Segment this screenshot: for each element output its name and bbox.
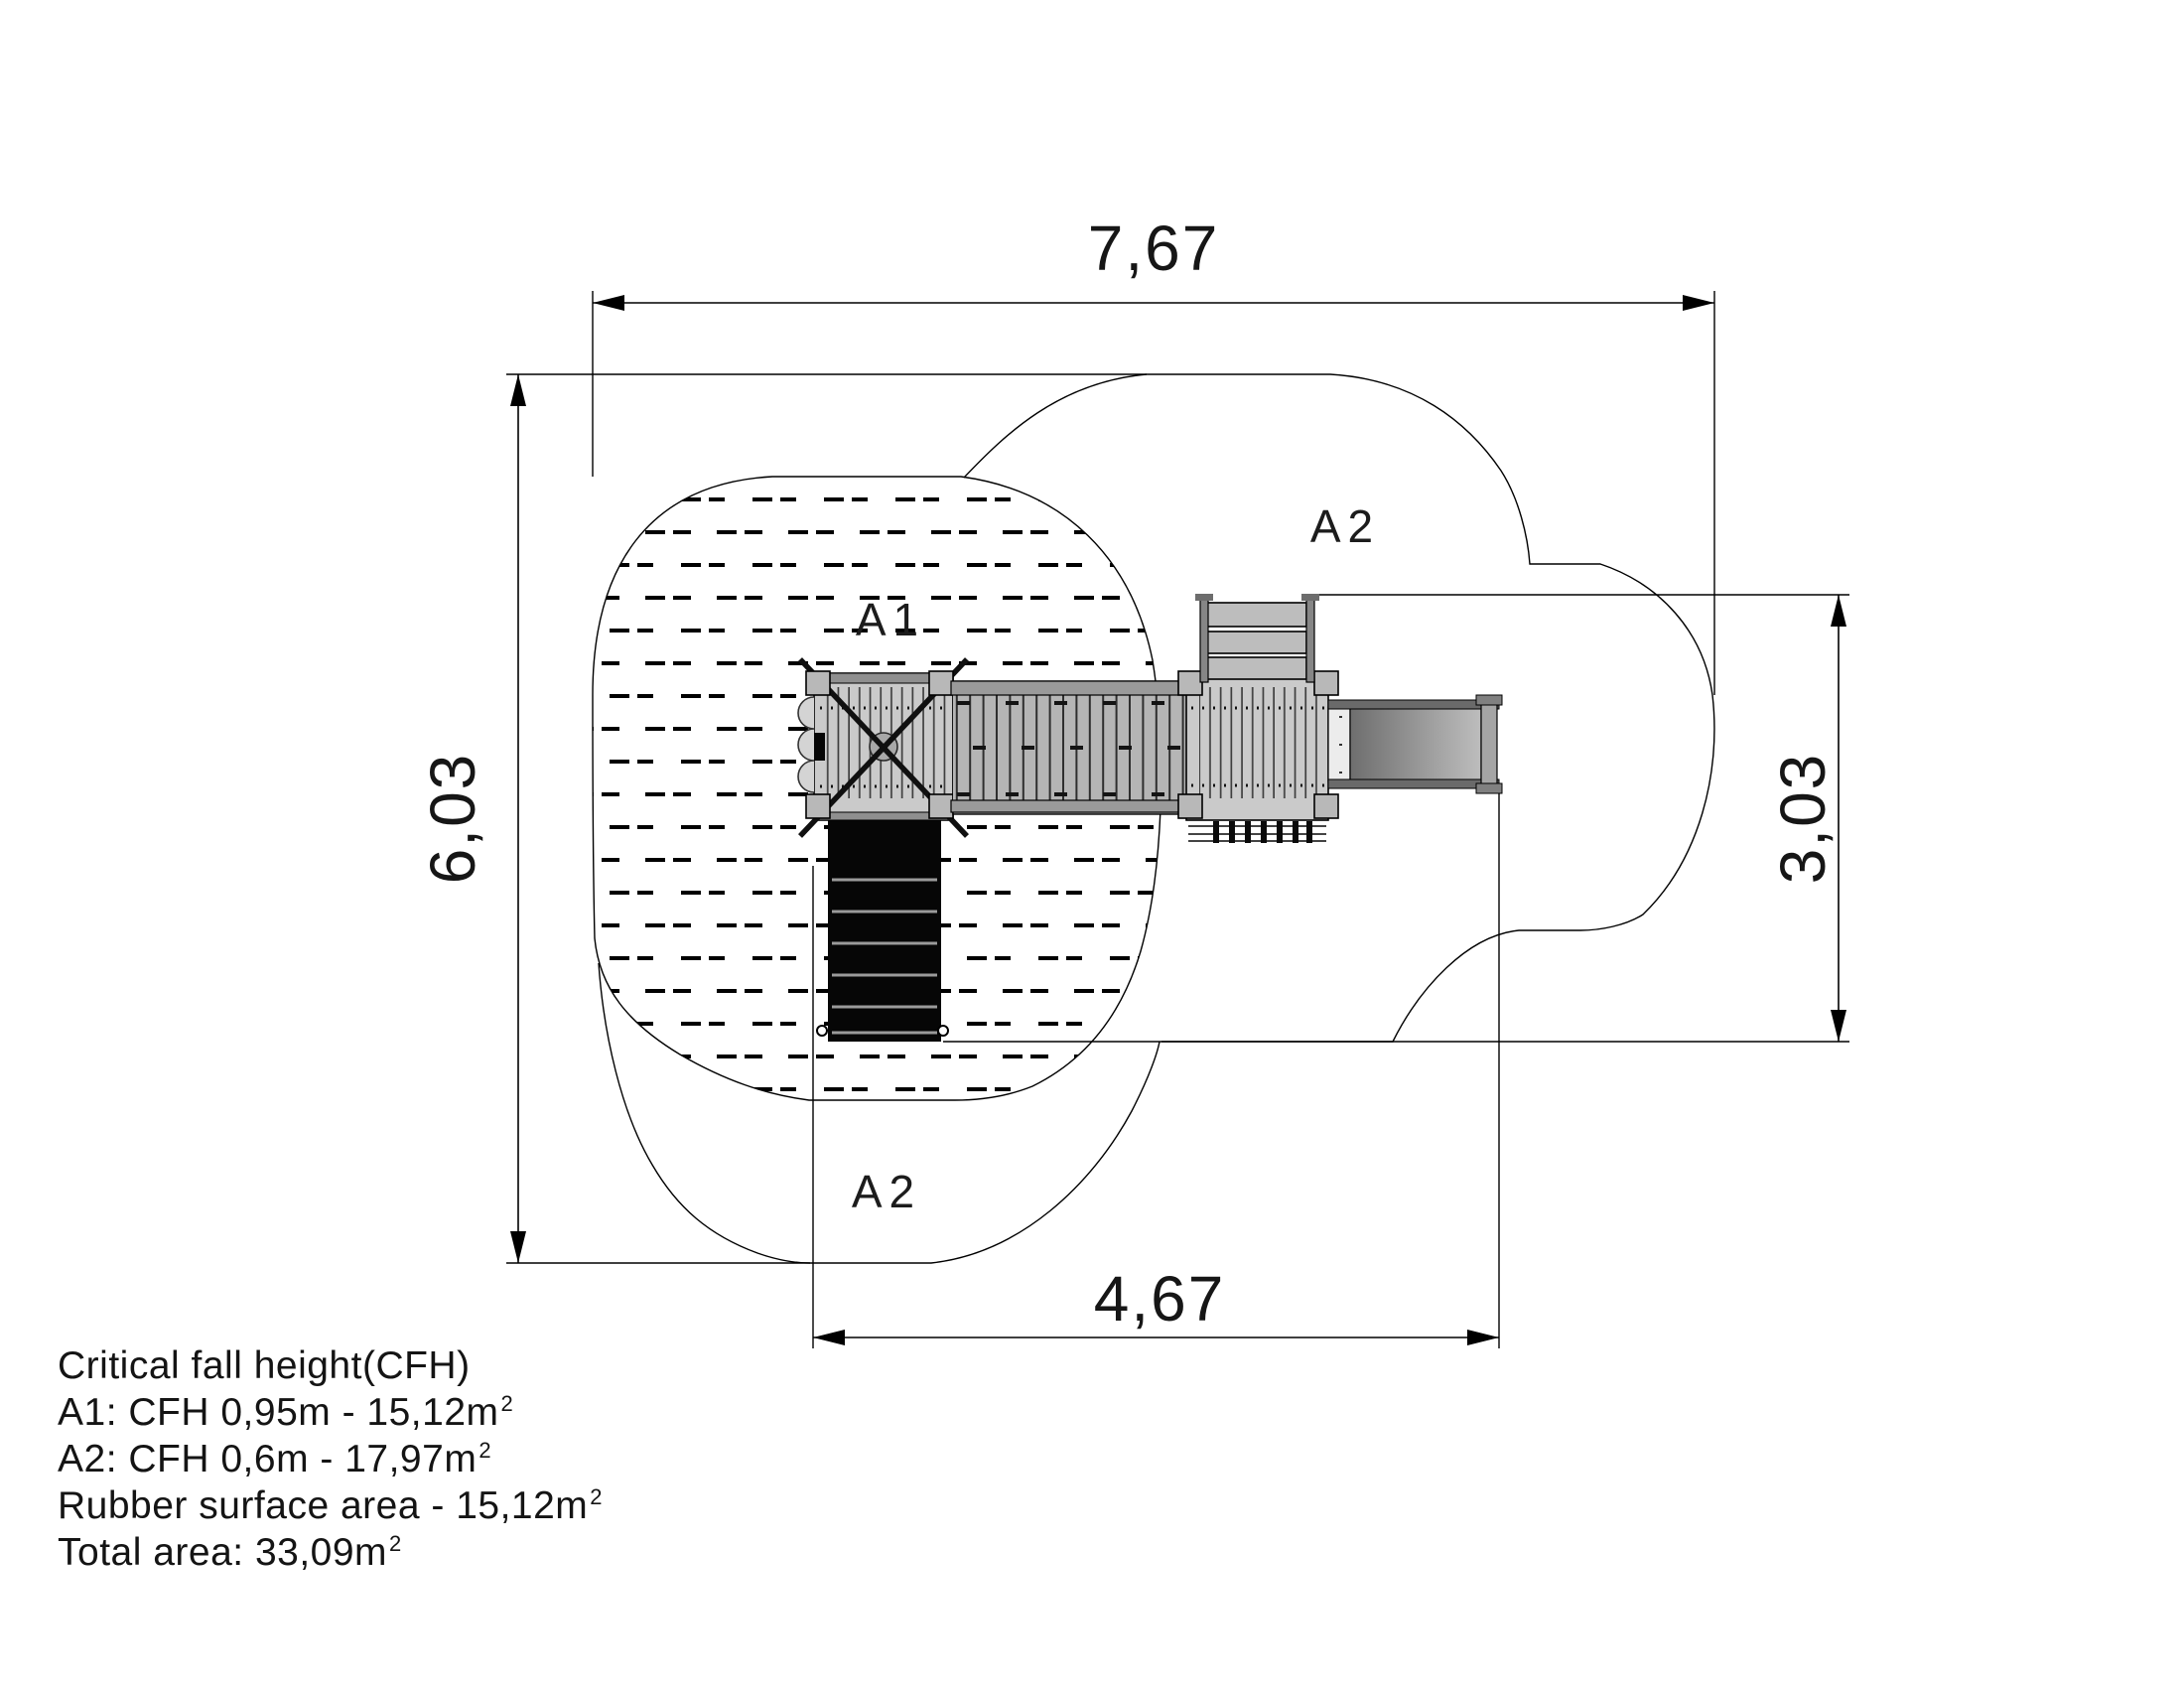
playground-plan-page: 7,67 6,03 3,03 4,67: [0, 0, 2184, 1688]
legend-title: Critical fall height(CFH): [58, 1342, 603, 1389]
arrow-up-icon: [1831, 595, 1846, 627]
dim-bottom-value: 4,67: [1094, 1263, 1226, 1335]
equipment-climber: [1195, 594, 1319, 682]
slide-rail-top: [1328, 700, 1499, 709]
equipment-slide: [1328, 695, 1502, 793]
arrow-down-icon: [510, 1231, 526, 1263]
equipment-right-platform: [1178, 671, 1338, 843]
legend-item-total: Total area: 33,09m2: [58, 1529, 603, 1576]
zone-label-a2-top: A2: [1310, 500, 1380, 552]
arrow-right-icon: [1467, 1330, 1499, 1345]
dim-top-value: 7,67: [1088, 212, 1220, 284]
dim-right-value: 3,03: [1767, 753, 1839, 885]
superscript: 2: [389, 1531, 402, 1556]
superscript: 2: [478, 1438, 491, 1463]
superscript: 2: [590, 1484, 603, 1509]
slide-rail-bottom: [1328, 779, 1499, 788]
equipment-stairs: [817, 820, 948, 1042]
zone-label-a1: A1: [856, 594, 925, 645]
climber-rail-right: [1306, 596, 1314, 682]
slide-end-bar: [1481, 698, 1497, 791]
handrail-post-left: [817, 1026, 827, 1036]
legend-block: Critical fall height(CFH) A1: CFH 0,95m …: [58, 1342, 603, 1576]
superscript: 2: [501, 1391, 514, 1416]
dimension-right: 3,03: [1318, 595, 1849, 1042]
legend-item-a2: A2: CFH 0,6m - 17,97m2: [58, 1436, 603, 1482]
equipment-left-platform: [798, 659, 967, 836]
climber-rail-left: [1200, 596, 1208, 682]
arrow-left-icon: [593, 295, 624, 311]
handrail-post-right: [938, 1026, 948, 1036]
climb-scallops: [798, 697, 814, 792]
arrow-down-icon: [1831, 1010, 1846, 1042]
entry-marker: [814, 733, 825, 761]
dim-left-value: 6,03: [417, 753, 488, 885]
zone-label-a2-bottom: A2: [852, 1166, 921, 1217]
slide-bed: [1350, 707, 1481, 781]
arrow-up-icon: [510, 374, 526, 406]
legend-item-rubber: Rubber surface area - 15,12m2: [58, 1482, 603, 1529]
arrow-left-icon: [813, 1330, 845, 1345]
railing-band: [1188, 821, 1326, 843]
arrow-right-icon: [1683, 295, 1714, 311]
equipment-bridge: [951, 681, 1188, 814]
legend-item-a1: A1: CFH 0,95m - 15,12m2: [58, 1389, 603, 1436]
